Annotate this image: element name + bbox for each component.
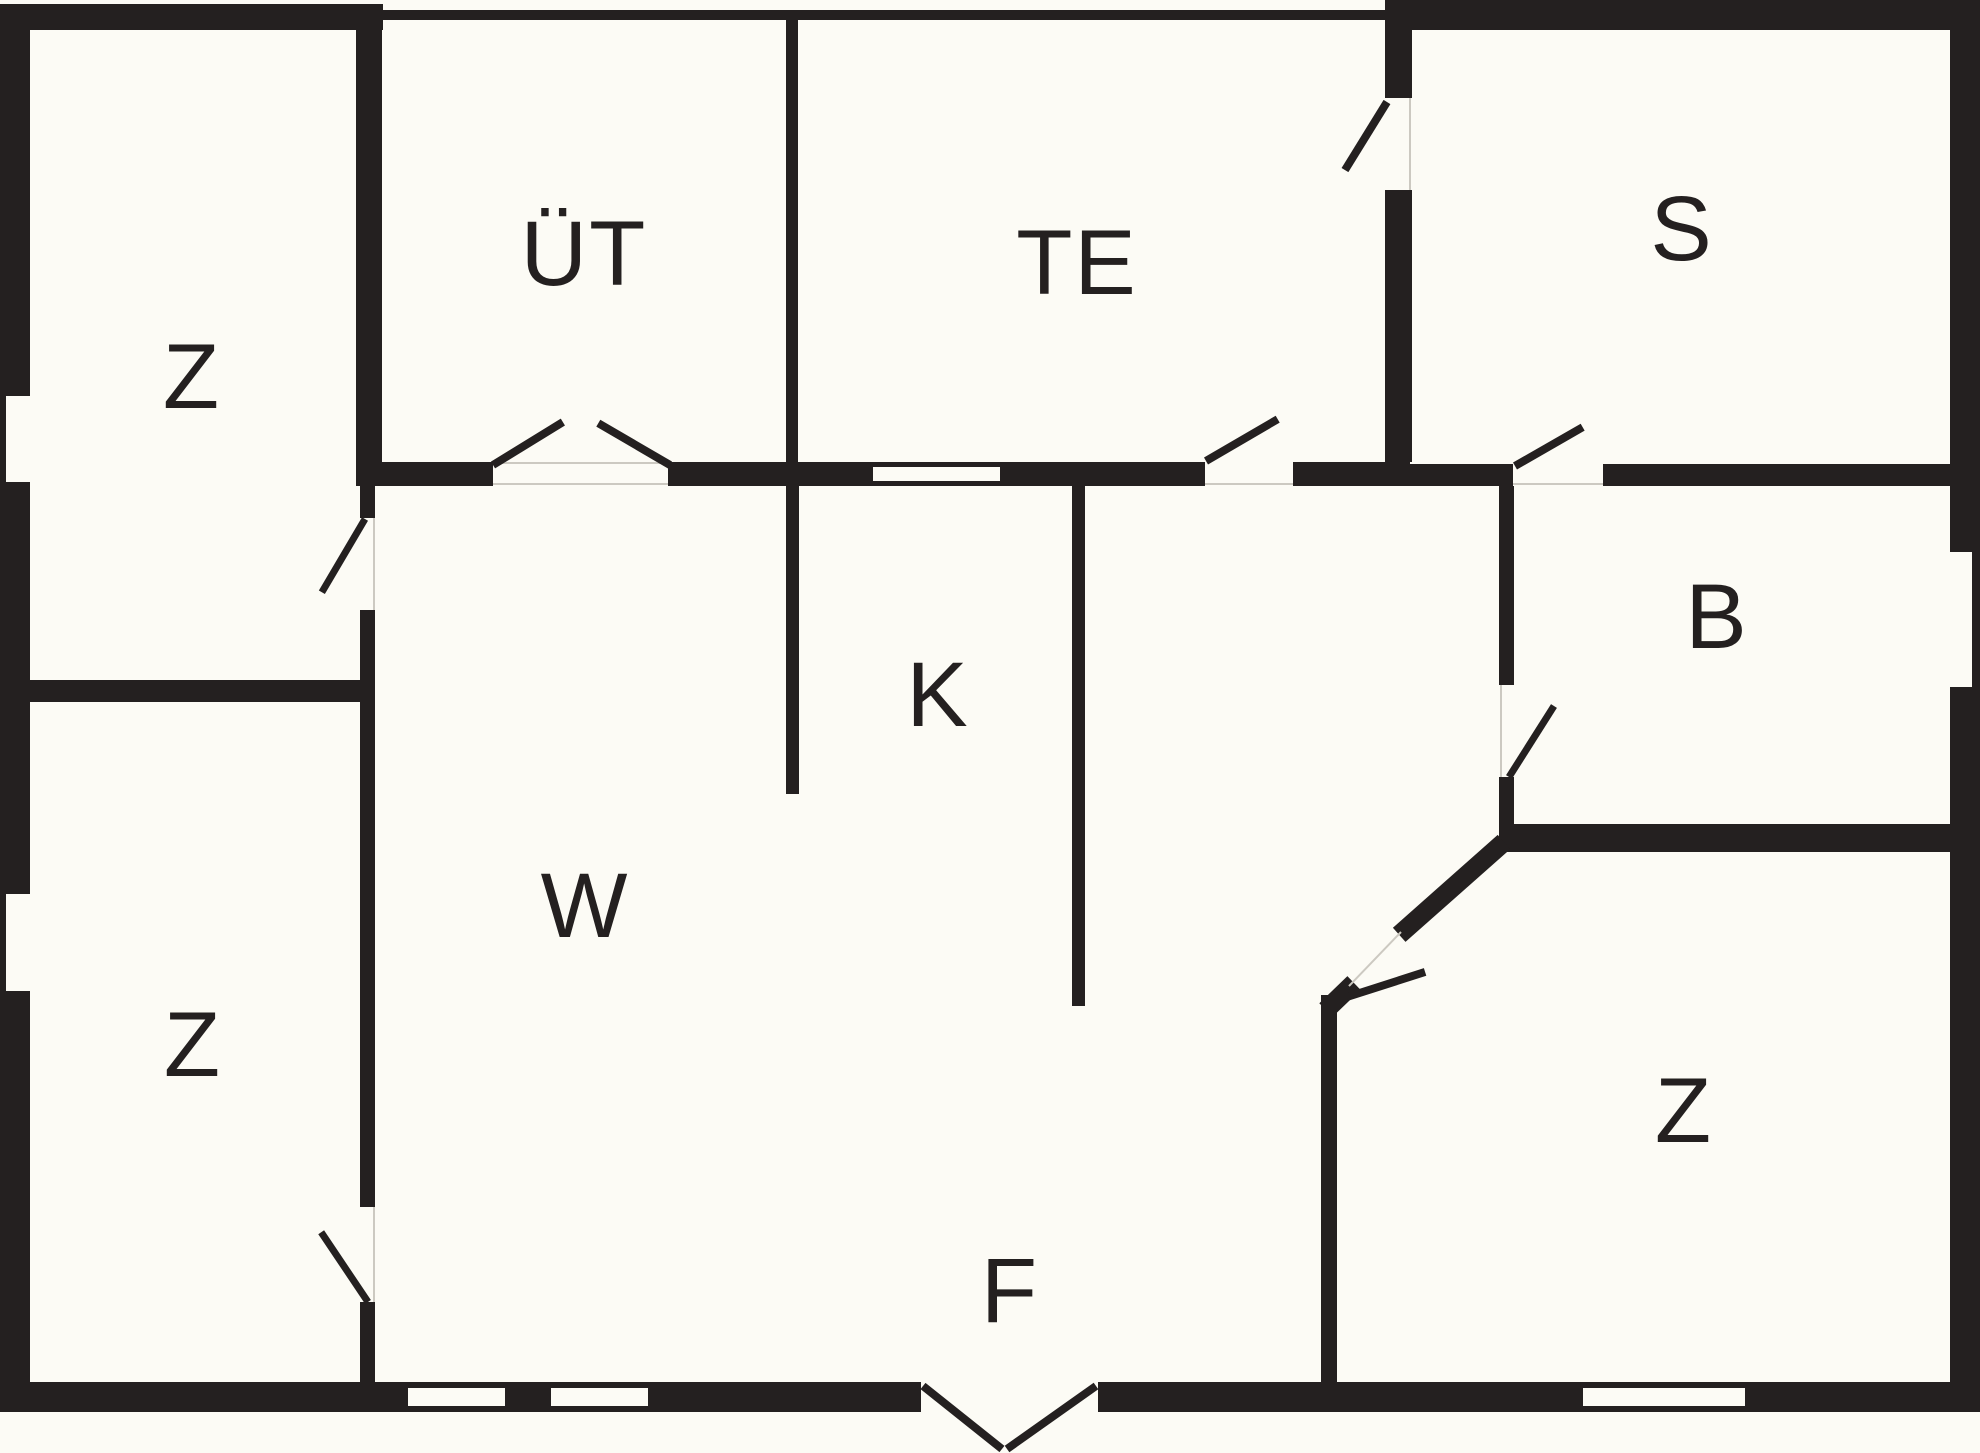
gapline-te	[1205, 483, 1293, 485]
wall-w-z-lower	[360, 1302, 375, 1382]
wall-b-left-upper	[1499, 486, 1514, 685]
gapline-z-top	[373, 518, 375, 610]
wall-k-right	[1072, 486, 1085, 1006]
exterior-wall-left	[0, 4, 30, 1412]
room-label-k: K	[906, 649, 969, 741]
room-label-ut: ÜT	[521, 208, 648, 300]
window-bottom-3	[1583, 1388, 1745, 1406]
door-ut-left-leaf	[491, 419, 565, 469]
wall-z-z-divider	[30, 680, 375, 702]
wall-z-ut	[356, 11, 382, 466]
wall-diagonal-upper	[1393, 835, 1511, 942]
exterior-wall-top-right	[1385, 0, 1980, 30]
room-label-z-bottom-left: Z	[164, 999, 222, 1091]
exterior-wall-right	[1950, 0, 1980, 1412]
wall-k-left	[786, 486, 799, 794]
gapline-b	[1500, 685, 1502, 777]
window-right-b	[1950, 552, 1972, 687]
porch-line-right	[1005, 1383, 1099, 1453]
porch-line-left	[921, 1383, 1005, 1452]
exterior-wall-top-middle	[381, 10, 1385, 20]
wall-ut-te-divider	[786, 11, 798, 466]
wall-w-z-upper	[360, 462, 375, 518]
wall-f-z-vertical	[1321, 995, 1337, 1382]
door-b-leaf	[1506, 704, 1557, 779]
exterior-wall-top-left	[0, 4, 383, 30]
door-z-bottom-leaf	[318, 1230, 371, 1304]
wall-s-bottom-left	[1410, 464, 1513, 486]
floor-plan: Z ÜT TE S K W B Z Z F	[0, 0, 1980, 1453]
gapline-te-s	[1409, 98, 1411, 190]
wall-s-left-upper	[1385, 0, 1412, 98]
wall-b-bottom	[1499, 824, 1950, 852]
wall-s-bottom-right	[1603, 464, 1950, 486]
gapline-z-bottom	[373, 1207, 375, 1302]
room-label-te: TE	[1016, 217, 1138, 309]
gapline-s	[1513, 483, 1603, 485]
door-te-leaf	[1204, 416, 1280, 465]
window-left-lower	[6, 894, 30, 991]
window-te-hatch	[873, 467, 1000, 481]
window-bottom-2	[551, 1388, 648, 1406]
room-label-s: S	[1650, 183, 1713, 275]
window-bottom-1	[408, 1388, 505, 1406]
room-label-w: W	[541, 860, 630, 952]
room-label-b: B	[1685, 571, 1748, 663]
room-label-z-top-left: Z	[163, 331, 221, 423]
wall-ut-bottom	[356, 462, 493, 486]
exterior-wall-bottom-right	[1098, 1382, 1980, 1412]
wall-te-bottom-right	[1293, 462, 1410, 486]
door-s-leaf	[1513, 424, 1585, 470]
gapline-ut-top	[493, 462, 668, 464]
door-z-top-leaf	[319, 517, 368, 594]
door-diagonal-leaf	[1346, 968, 1426, 1001]
gapline-ut-bottom	[493, 483, 668, 485]
window-left-upper	[6, 396, 30, 482]
wall-s-left-lower	[1385, 190, 1412, 462]
room-label-z-bottom-right: Z	[1655, 1065, 1713, 1157]
door-te-s-leaf	[1342, 100, 1391, 172]
room-label-f: F	[981, 1245, 1039, 1337]
